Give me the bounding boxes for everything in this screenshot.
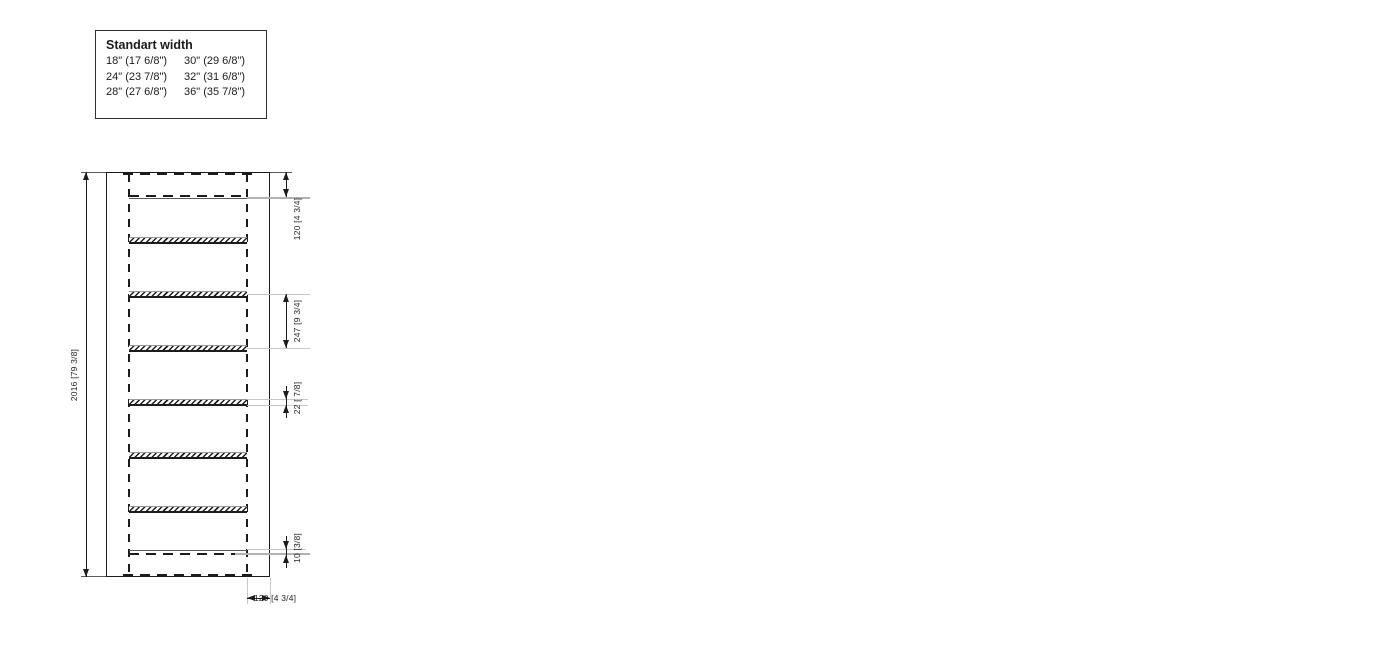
label-stile-width: 120 [4 3/4] [254,593,296,603]
top-rail-line [129,198,247,199]
arrowhead [283,391,289,399]
arrowhead [283,541,289,549]
sill-line [129,550,247,551]
legend-item: 36" (35 7/8") [184,86,256,98]
stile-hidden-line-right [246,174,248,575]
stile-hidden-line-left [128,174,130,575]
dim-overall-height [86,172,87,577]
legend-item: 32" (31 6/8") [184,71,256,83]
label-bottom-offset: 10 [3/8] [292,533,302,563]
legend-values: 18" (17 6/8") 30" (29 6/8") 24" (23 7/8"… [106,55,256,98]
standard-width-legend: Standart width 18" (17 6/8") 30" (29 6/8… [95,30,267,119]
leader-line [247,348,310,349]
top-hidden-line [129,195,247,198]
leader-line [247,294,310,295]
legend-item: 18" (17 6/8") [106,55,184,67]
arrowhead [283,340,289,348]
rung-bar [129,506,247,513]
rung-bar [129,291,247,298]
label-rung-thickness: 22 [ 7/8] [292,382,302,415]
legend-item: 28" (27 6/8") [106,86,184,98]
rung-bar [129,452,247,459]
label-overall-height: 2016 [79 3/8] [69,348,79,400]
legend-item: 24" (23 7/8") [106,71,184,83]
rung-bar [129,399,247,406]
arrowhead [83,569,89,577]
arrowhead [83,172,89,180]
technical-drawing-sheet: Standart width 18" (17 6/8") 30" (29 6/8… [0,0,1400,670]
bottom-edge-hidden-line [123,574,253,577]
label-top-offset: 120 [4 3/4] [292,198,302,240]
top-edge-hidden-line [123,172,253,175]
arrowhead [283,189,289,197]
rung-bar [129,237,247,244]
arrowhead [283,405,289,413]
label-rung-spacing: 247 [9 3/4] [292,300,302,342]
rung-bar [129,345,247,352]
legend-item: 30" (29 6/8") [184,55,256,67]
arrowhead [283,294,289,302]
arrowhead [283,172,289,180]
arrowhead [283,555,289,563]
legend-title: Standart width [106,38,256,52]
bottom-hidden-line [129,553,247,556]
